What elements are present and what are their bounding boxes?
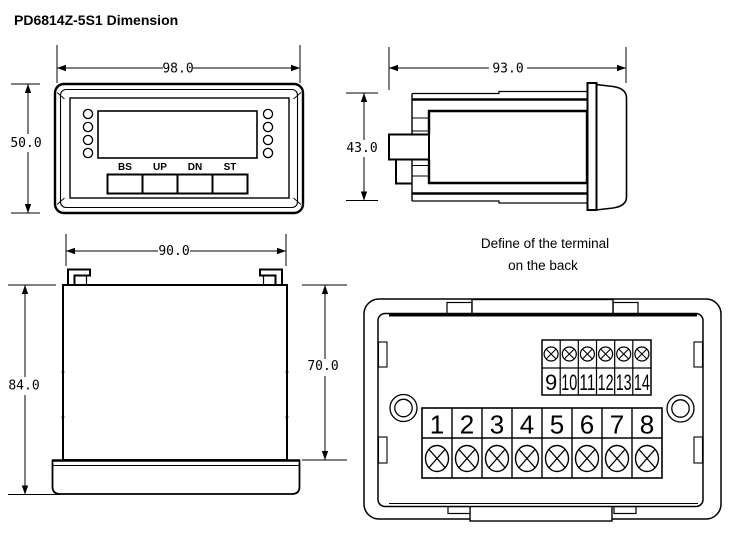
side-height-dimension: 43.0	[346, 93, 378, 201]
side-height-label: 43.0	[346, 141, 377, 156]
side-case-body	[389, 92, 589, 204]
top-tab-small-left	[447, 303, 472, 315]
side-view: 93.0 43.0	[346, 47, 627, 210]
terminal-number: 10	[561, 370, 577, 395]
terminal-number: 5	[550, 410, 564, 440]
button-label-bs: BS	[118, 162, 132, 173]
button-label-st: ST	[224, 162, 237, 173]
side-bezel-flange	[588, 83, 597, 210]
led-indicator	[263, 122, 272, 131]
terminal-number: 1	[430, 410, 444, 440]
terminal-number: 12	[598, 370, 614, 395]
front-width-label: 98.0	[162, 62, 193, 77]
led-indicator	[83, 148, 92, 157]
terminal-strip-top: 9 10 11 12 13 14	[542, 340, 651, 395]
arrow-left-icon	[57, 65, 66, 71]
side-notch-left-lower	[379, 437, 388, 463]
front-panel	[70, 98, 289, 198]
button-dividers	[143, 175, 213, 194]
terminal-number: 6	[580, 410, 594, 440]
dimension-drawing: PD6814Z-5S1 Dimension 98.0 50.0	[0, 0, 745, 545]
bezel-corner-marks	[57, 93, 301, 205]
mounting-clip-right	[260, 270, 282, 286]
front-height-dimension: 50.0	[10, 84, 41, 213]
side-bezel-face	[596, 85, 627, 211]
rear-step	[396, 160, 412, 184]
side-notch-right-upper	[694, 342, 703, 367]
back-view: Define of the terminal on the back	[364, 236, 721, 521]
terminal-number: 11	[579, 370, 595, 395]
bottom-view: 90.0 84.0 70.0	[8, 234, 347, 495]
arrow-down-icon	[22, 486, 28, 495]
top-tab-center	[472, 300, 613, 315]
bottom-width-label: 90.0	[158, 244, 189, 259]
case-bottom-edge	[412, 201, 589, 203]
case-top-edge	[412, 92, 589, 94]
button-label-up: UP	[153, 162, 167, 173]
led-column-right	[263, 109, 272, 157]
front-view: 98.0 50.0 BS UP DN	[10, 45, 303, 213]
terminal-number: 13	[616, 370, 632, 395]
terminal-number: 9	[545, 370, 557, 395]
case-body	[63, 285, 287, 460]
bottom-tab-small-left	[448, 507, 470, 514]
total-height-label: 84.0	[8, 379, 39, 394]
led-indicator	[263, 148, 272, 157]
arrow-left-icon	[389, 65, 398, 71]
terminal-strip-bottom: 1 2 3 4 5 6 7 8	[422, 408, 662, 478]
arrow-down-icon	[322, 451, 328, 460]
display-window	[98, 111, 257, 158]
terminal-number: 7	[610, 410, 624, 440]
led-indicator	[263, 135, 272, 144]
arrow-up-icon	[25, 84, 31, 93]
arrow-right-icon	[617, 65, 626, 71]
dimension-drawing-page: PD6814Z-5S1 Dimension 98.0 50.0	[0, 0, 745, 545]
led-column-left	[83, 109, 92, 157]
arrow-up-icon	[322, 285, 328, 294]
page-title: PD6814Z-5S1 Dimension	[14, 12, 178, 28]
bottom-tab-small-right	[614, 507, 636, 514]
terminal-number: 8	[640, 410, 654, 440]
arrow-down-icon	[361, 192, 367, 201]
terminal-number: 4	[520, 410, 534, 440]
led-indicator	[263, 109, 272, 118]
terminal-number: 2	[460, 410, 474, 440]
button-label-dn: DN	[188, 162, 202, 173]
led-indicator	[83, 109, 92, 118]
led-indicator	[83, 122, 92, 131]
side-notch-left-upper	[379, 342, 388, 367]
front-height-label: 50.0	[10, 136, 41, 151]
arrow-up-icon	[361, 93, 367, 102]
arrow-left-icon	[66, 248, 75, 254]
rear-connector-block	[389, 135, 429, 160]
terminal-number: 3	[490, 410, 504, 440]
back-caption-line1: Define of the terminal	[481, 236, 609, 251]
body-height-label: 70.0	[307, 359, 338, 374]
back-caption-line2: on the back	[508, 258, 578, 273]
mounting-clip-left	[68, 270, 90, 286]
terminal-number: 14	[634, 370, 650, 395]
arrow-down-icon	[25, 204, 31, 213]
side-notch-right-lower	[694, 437, 703, 463]
arrow-up-icon	[22, 285, 28, 294]
top-tab-small-right	[613, 303, 638, 315]
bottom-tab-center	[470, 506, 612, 521]
arrow-right-icon	[291, 65, 300, 71]
bottom-width-dimension: 90.0	[66, 234, 286, 266]
side-width-label: 93.0	[492, 62, 523, 77]
front-bezel-inner-line	[61, 90, 298, 208]
case-inner-box	[429, 111, 587, 183]
arrow-right-icon	[277, 248, 286, 254]
led-indicator	[83, 135, 92, 144]
front-width-dimension: 98.0	[57, 45, 300, 83]
body-height-dimension: 70.0	[302, 285, 347, 460]
case-seam-marks	[62, 372, 289, 417]
